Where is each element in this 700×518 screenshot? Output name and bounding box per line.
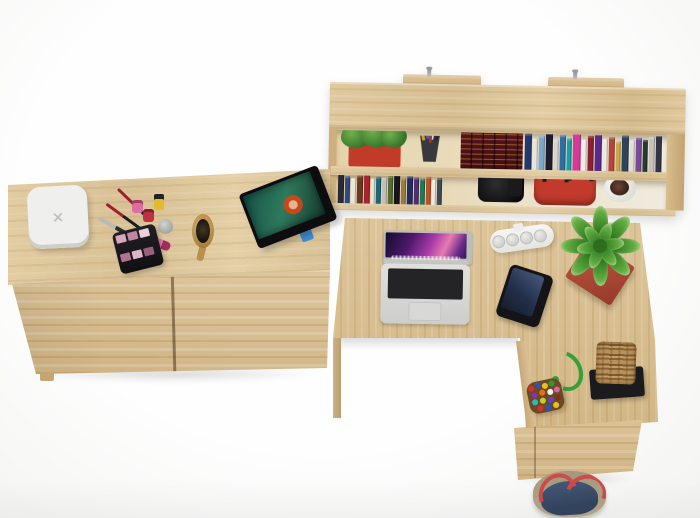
hairbrush-head <box>192 214 214 248</box>
nail-polish-red <box>143 209 154 222</box>
denim-bag <box>533 471 606 517</box>
shelf-top-panel <box>329 82 686 137</box>
desk-left-leg-panel <box>333 338 341 418</box>
dresser-front <box>8 268 330 378</box>
dresser-leg <box>40 372 54 381</box>
wireless-charger: × <box>26 184 89 249</box>
shelf-right-end-panel <box>666 134 685 210</box>
laptop <box>380 230 471 325</box>
dresser-front-shading <box>8 268 330 378</box>
cosmetic-jar <box>158 219 173 234</box>
woven-basket <box>595 341 636 384</box>
succulent-center <box>593 239 607 253</box>
nail-polish-pink <box>132 200 143 213</box>
power-socket <box>491 234 506 249</box>
succulent-plant <box>560 206 640 292</box>
product-render-stage: × <box>0 0 700 518</box>
power-strip-clip <box>513 223 524 232</box>
encyclopedia-book-set <box>460 130 523 170</box>
screw-icon <box>427 69 431 77</box>
hairbrush <box>192 214 216 254</box>
desk-under-shadow <box>336 338 518 350</box>
smartphone-screen <box>500 267 544 317</box>
screw-icon <box>573 71 577 79</box>
wall-shelf-unit <box>328 72 689 219</box>
red-handbag <box>534 175 597 206</box>
nail-polish-yellow <box>154 194 164 210</box>
pen-cup <box>416 135 442 161</box>
laptop-trackpad <box>408 302 441 322</box>
power-socket <box>533 229 548 244</box>
power-socket <box>505 232 520 247</box>
plant-foliage <box>381 130 407 148</box>
book-row-upper <box>524 130 662 172</box>
laptop-keyboard <box>388 268 464 299</box>
black-camera <box>478 175 525 203</box>
laptop-base <box>380 263 470 325</box>
pedestal-panel-seam <box>534 426 536 478</box>
laptop-screen <box>385 232 466 258</box>
power-socket <box>519 231 534 246</box>
x-mark-icon: × <box>51 208 65 227</box>
